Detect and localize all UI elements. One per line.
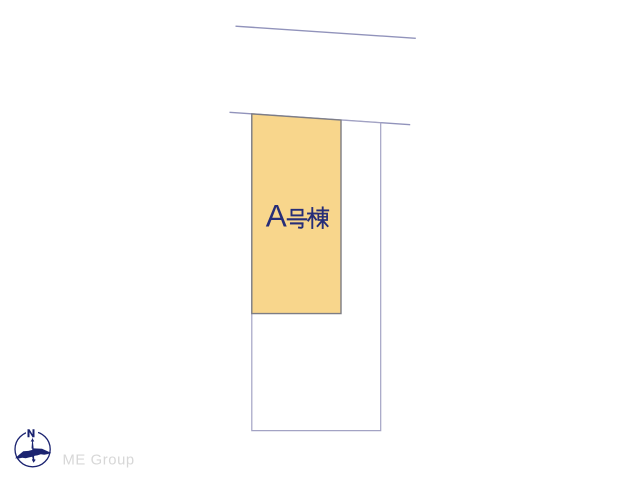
svg-text:ME Group: ME Group	[63, 453, 135, 469]
svg-text:A: A	[266, 197, 287, 233]
